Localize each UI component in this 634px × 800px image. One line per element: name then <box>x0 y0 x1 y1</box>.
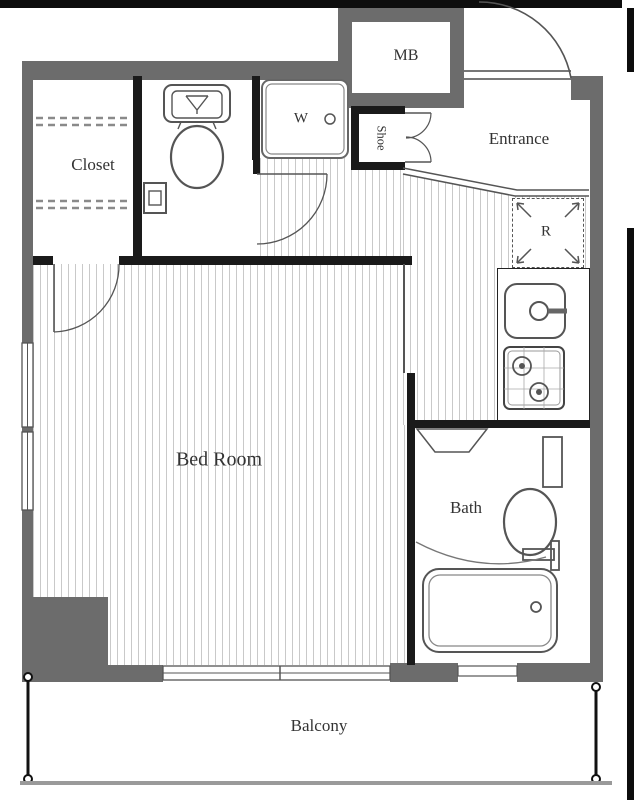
shoe-cabinet-label: Shoe <box>374 126 389 151</box>
kitchen-sink-icon <box>505 284 567 338</box>
washer-label: W <box>294 111 308 128</box>
closet-door-arc <box>54 264 119 332</box>
floor-plan: Closet Bed Room Entrance Bath Balcony MB… <box>0 0 634 800</box>
entrance-step-line-2 <box>403 174 589 196</box>
balcony-edge-line <box>20 781 612 785</box>
washbasin-icon <box>504 489 559 570</box>
toilet-icon <box>164 85 230 188</box>
toilet-door-arc <box>257 174 327 244</box>
bath-label: Bath <box>450 498 482 518</box>
entrance-label: Entrance <box>489 129 549 149</box>
shoe-door-top-arc <box>406 113 431 138</box>
shoe-door-bottom-arc <box>406 137 431 162</box>
bathtub-icon <box>423 569 557 652</box>
bedroom-label: Bed Room <box>176 449 262 472</box>
balcony-rail-left <box>24 673 32 783</box>
bath-shelf <box>543 437 562 487</box>
bath-folding-door <box>417 429 487 452</box>
refrigerator-label: R <box>541 224 551 241</box>
left-window-lower <box>22 432 33 510</box>
entrance-door-arc <box>479 2 571 78</box>
stove-icon <box>504 347 564 409</box>
meter-box-label: MB <box>394 47 419 65</box>
balcony-sliding-window <box>163 666 390 680</box>
bath-window <box>458 666 517 676</box>
fixtures-overlay <box>0 0 634 800</box>
left-window-upper <box>22 343 33 427</box>
balcony-rail-right <box>592 683 600 783</box>
closet-label: Closet <box>71 155 114 175</box>
toilet-paper-holder-icon <box>144 183 166 213</box>
balcony-label: Balcony <box>291 716 348 736</box>
